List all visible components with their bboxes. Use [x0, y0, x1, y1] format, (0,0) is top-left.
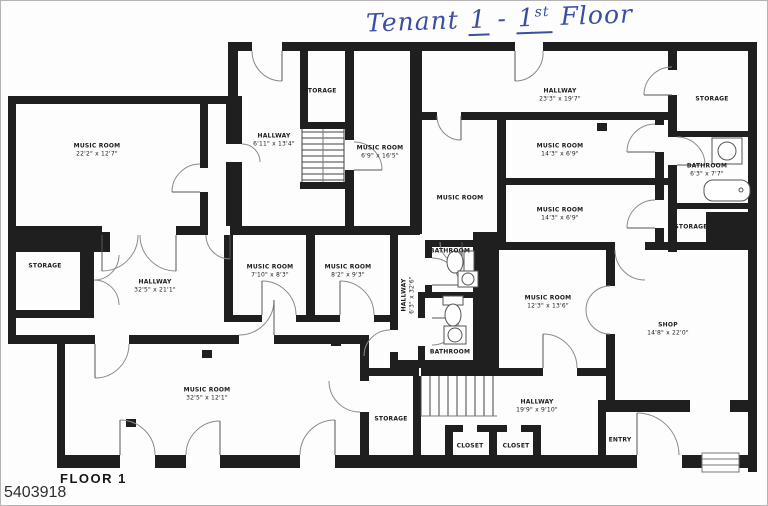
room-name: STORAGE	[28, 262, 61, 270]
room-name: MUSIC ROOM	[184, 387, 231, 395]
room-name: ENTRY	[609, 436, 632, 444]
room-name: MUSIC ROOM	[537, 143, 584, 151]
room-label-storage-right-mid: STORAGE	[674, 223, 707, 231]
room-name: HALLWAY	[134, 279, 176, 287]
handwritten-floor-number: 1st	[515, 2, 552, 34]
walls	[8, 42, 757, 472]
room-name: MUSIC ROOM	[325, 264, 372, 272]
room-label-music-room-2: MUSIC ROOM6'9" x 16'5"	[357, 145, 404, 160]
room-label-bathroom-center-bottom: BATHROOM	[430, 348, 470, 356]
room-name: HALLWAY	[253, 133, 295, 141]
room-dims: 7'10" x 8'3"	[247, 271, 294, 279]
sink-icon	[712, 138, 742, 164]
room-name: SHOP	[647, 322, 689, 330]
room-label-music-room-7: MUSIC ROOM8'2" x 9'3"	[325, 264, 372, 279]
handwritten-suffix: Floor	[560, 0, 633, 31]
room-name: STORAGE	[303, 87, 336, 95]
room-name: HALLWAY	[401, 276, 409, 314]
room-dims: 6'3" x 32'6"	[408, 276, 416, 314]
room-dims: 6'3" x 7'7"	[687, 170, 727, 178]
floor-plan-scan: MUSIC ROOM22'2" x 12'7" STORAGE HALLWAY6…	[0, 0, 768, 506]
floor-label: FLOOR 1	[60, 471, 127, 486]
room-label-hallway-upper-left: HALLWAY6'11" x 13'4"	[253, 133, 295, 148]
room-dims: 19'9" x 9'10"	[516, 406, 558, 414]
entry-steps	[702, 453, 739, 472]
room-label-music-room-5: MUSIC ROOM14'3" x 6'9"	[537, 207, 584, 222]
room-dims: 32'5" x 21'1"	[134, 286, 176, 294]
room-name: CLOSET	[503, 442, 530, 450]
bathtub-icon	[704, 180, 750, 201]
room-label-music-room-9: MUSIC ROOM32'5" x 12'1"	[184, 387, 231, 402]
room-label-hallway-center: HALLWAY32'5" x 21'1"	[134, 279, 176, 294]
room-name: STORAGE	[674, 223, 707, 231]
room-label-storage-top: STORAGE	[303, 87, 336, 95]
sink-icon	[444, 326, 466, 344]
handwritten-ordinal-suffix: st	[534, 4, 549, 21]
room-dims: 32'5" x 12'1"	[184, 394, 231, 402]
room-label-music-room-6: MUSIC ROOM7'10" x 8'3"	[247, 264, 294, 279]
room-name: MUSIC ROOM	[437, 194, 484, 202]
photo-id: 5403918	[4, 484, 66, 502]
room-label-hallway-bottom: HALLWAY19'9" x 9'10"	[516, 399, 558, 414]
room-name: MUSIC ROOM	[247, 264, 294, 272]
staircase-lower	[421, 376, 497, 416]
room-dims: 14'3" x 6'9"	[537, 214, 584, 222]
room-label-music-room-4: MUSIC ROOM	[437, 194, 484, 202]
room-name: BATHROOM	[430, 348, 470, 356]
room-label-music-room-8: MUSIC ROOM12'3" x 13'6"	[525, 295, 572, 310]
room-label-storage-left: STORAGE	[28, 262, 61, 270]
room-name: MUSIC ROOM	[357, 145, 404, 153]
room-name: MUSIC ROOM	[525, 295, 572, 303]
room-dims: 14'3" x 6'9"	[537, 150, 584, 158]
room-dims: 14'8" x 22'0"	[647, 329, 689, 337]
room-dims: 22'2" x 12'7"	[74, 150, 121, 158]
room-label-storage-bottom: STORAGE	[374, 415, 407, 423]
room-dims: 23'3" x 19'7"	[539, 95, 581, 103]
room-label-music-room-3: MUSIC ROOM14'3" x 6'9"	[537, 143, 584, 158]
room-name: HALLWAY	[516, 399, 558, 407]
room-name: STORAGE	[695, 95, 728, 103]
staircase-upper	[302, 129, 344, 182]
handwritten-prefix: Tenant	[366, 5, 460, 37]
room-name: HALLWAY	[539, 88, 581, 96]
room-name: MUSIC ROOM	[74, 143, 121, 151]
room-label-hallway-upper-right: HALLWAY23'3" x 19'7"	[539, 88, 581, 103]
handwritten-tenant-number: 1	[467, 4, 489, 36]
room-label-bathroom-center-top: BATHROOM	[430, 247, 470, 255]
room-dims: 12'3" x 13'6"	[525, 302, 572, 310]
room-label-storage-right-top: STORAGE	[695, 95, 728, 103]
room-label-music-room-1: MUSIC ROOM22'2" x 12'7"	[74, 143, 121, 158]
room-label-closet-2: CLOSET	[503, 442, 530, 450]
room-label-entry: ENTRY	[609, 436, 632, 444]
sink-icon	[458, 271, 478, 287]
room-dims: 8'2" x 9'3"	[325, 271, 372, 279]
room-label-shop: SHOP14'8" x 22'0"	[647, 322, 689, 337]
room-name: STORAGE	[374, 415, 407, 423]
room-label-hallway-vertical: HALLWAY6'3" x 32'6"	[401, 276, 416, 314]
room-name: BATHROOM	[430, 247, 470, 255]
floorplan-drawing	[0, 0, 768, 506]
room-label-bathroom-right: BATHROOM6'3" x 7'7"	[687, 163, 727, 178]
room-name: BATHROOM	[687, 163, 727, 171]
room-name: MUSIC ROOM	[537, 207, 584, 215]
room-dims: 6'11" x 13'4"	[253, 140, 295, 148]
handwritten-separator: -	[497, 4, 507, 33]
toilet-icon	[443, 296, 463, 326]
room-name: CLOSET	[457, 442, 484, 450]
room-dims: 6'9" x 16'5"	[357, 152, 404, 160]
room-label-closet-1: CLOSET	[457, 442, 484, 450]
